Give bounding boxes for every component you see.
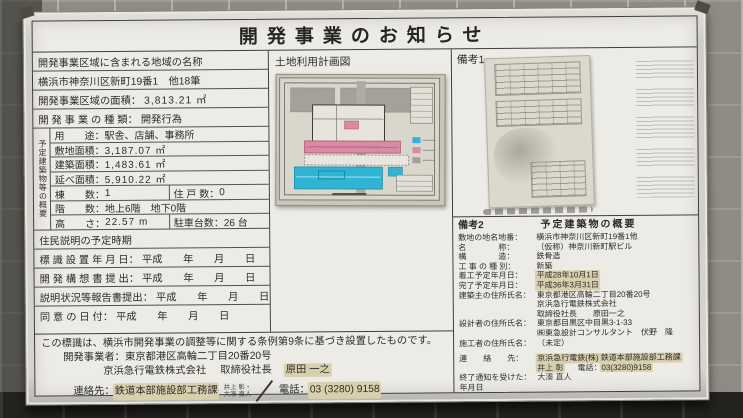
work-type-value: 新築 xyxy=(536,261,552,271)
owner-address: 東京都港区高輪二丁目20番20号 xyxy=(537,289,651,299)
land-use-plan-map xyxy=(275,74,445,206)
remarks2-phone-number: 03(3280)9158 xyxy=(601,363,651,373)
owner-company: 京浜急行電鉄株式会社 xyxy=(537,299,617,309)
height-cell: 高 さ： 22.57 m xyxy=(51,215,169,230)
height-label: 高 さ： xyxy=(55,215,105,230)
phone-number: 03 (3280) 9158 xyxy=(310,382,380,397)
planned-building-vertical-label: 予定建築物等の概要 xyxy=(33,128,51,229)
lot-number-label: 敷地の地名地番： xyxy=(458,233,536,243)
pasted-document-table-3 xyxy=(530,160,586,198)
parking-cell: 駐車台数： 26 台 xyxy=(169,214,269,228)
owner-label: 建築主の住所氏名： xyxy=(459,290,537,300)
sign-installed-date-label: 標 識 設 置 年 月 日： xyxy=(39,250,139,266)
total-floor-area-label: 延べ面積： xyxy=(55,171,105,186)
concept-submitted-date-label: 開 発 構 想 書 提 出： xyxy=(39,269,139,285)
report-submitted-date-row: 説明状況等報告書提出： 平成 年 月 日 xyxy=(35,286,270,307)
company-name: 京浜急行電鉄株式会社 xyxy=(103,365,206,377)
concept-submitted-date-value: 平成 年 月 日 xyxy=(142,268,255,284)
main-left-section: 開発事業区域に含まれる地域の名称 横浜市神奈川区新町19番1 他18筆 開発事業… xyxy=(33,49,455,395)
building-name-label: 名 称： xyxy=(458,242,536,252)
developer-address: 東京都港区高輪二丁目20番20号 xyxy=(125,350,272,362)
consent-date-label: 同 意 の 日 付： xyxy=(40,308,113,324)
project-type-value: 開発行為 xyxy=(141,110,182,125)
contact-department: 鉄道本部施設部工務課 xyxy=(115,384,218,399)
parking-value: 26 台 xyxy=(224,214,248,229)
faded-side-text xyxy=(636,57,695,197)
site-area-label: 敷地面積： xyxy=(54,142,104,157)
consent-date-value: 平成 年 月 日 xyxy=(116,307,229,323)
remarks2-title: 予定建築物の概要 xyxy=(484,220,694,231)
remarks2-contact-department: 京浜急行電鉄(株) 鉄道本部施設部工務課 xyxy=(537,353,681,364)
sign-installed-date-row: 標 識 設 置 年 月 日： 平成 年 月 日 xyxy=(34,248,269,269)
region-area-label: 開発事業区域の面積： xyxy=(38,91,141,107)
builder-label: 施工者の住所氏名： xyxy=(459,338,537,348)
use-label: 用 途： xyxy=(54,127,104,142)
total-floor-area-value: 5,910.22 ㎡ xyxy=(105,171,167,186)
pasted-document-table-1 xyxy=(494,61,581,96)
work-type-label: 工 事 の 種 別： xyxy=(458,261,536,271)
structure-value: 鉄骨造 xyxy=(536,252,560,262)
stories-value: 地上6階 地下0階 xyxy=(105,200,186,216)
handwritten-slash xyxy=(256,380,273,402)
planned-building-rows: 用 途： 駅舎、店舗、事務所 敷地面積： 3,187.07 ㎡ 建築面積： 1,… xyxy=(50,127,269,230)
building-area-label: 建築面積： xyxy=(55,157,105,172)
building-count-label: 棟 数： xyxy=(55,186,105,201)
consent-date-row: 同 意 の 日 付： 平成 年 月 日 xyxy=(35,305,270,326)
start-date-label: 着工予定年月日： xyxy=(459,271,537,281)
completion-notice-date-label: 年月日 xyxy=(459,383,483,392)
handwritten-names: 井上 彰・大湊 直人 xyxy=(224,383,252,397)
concept-submitted-date-row: 開 発 構 想 書 提 出： 平成 年 月 日 xyxy=(34,267,269,288)
builder-value: （未定） xyxy=(537,338,569,348)
land-use-plan-header: 土地利用計画図 xyxy=(269,49,451,69)
designer-company: ㈱東急設計コンサルタント 伏野 隆 xyxy=(537,328,673,339)
pasted-document xyxy=(484,55,595,208)
notice-content: 開発事業区域に含まれる地域の名称 横浜市神奈川区新町19番1 他18筆 開発事業… xyxy=(33,47,700,395)
remarks1-section: 備考1 xyxy=(452,47,698,217)
notice-board: 開発事業のお知らせ 開発事業区域に含まれる地域の名称 横浜市神奈川区新町19番1… xyxy=(32,15,701,396)
pasted-document-table-2 xyxy=(495,98,582,127)
sign-installed-date-value: 平成 年 月 日 xyxy=(142,249,255,265)
dwelling-units-label: 住 戸 数： xyxy=(174,185,220,200)
start-date-value: 平成28年10月1日 xyxy=(537,271,599,281)
project-type-label: 開 発 事 業 の 種 類： xyxy=(38,110,138,126)
region-area-row: 開発事業区域の面積： 3,813.21 ㎡ xyxy=(33,89,268,110)
land-use-plan-drawing xyxy=(276,75,442,203)
land-use-plan-section: 土地利用計画図 xyxy=(269,49,453,331)
planned-building-block: 予定建築物等の概要 用 途： 駅舎、店舗、事務所 敷地面積： 3,187.07 … xyxy=(33,127,269,231)
remarks2-contact-label: 連 絡 先： xyxy=(459,354,537,364)
ordinance-note: この標識は、横浜市開発事業の調整等に関する条例第9条に基づき設置したものです。 … xyxy=(35,330,453,395)
region-name-header: 開発事業区域に含まれる地域の名称 xyxy=(33,51,268,72)
remarks2-phone-label: 電話： xyxy=(577,363,601,373)
building-count-cell: 棟 数： 1 xyxy=(51,186,169,201)
resident-briefing-header: 住民説明の予定時期 xyxy=(34,229,269,250)
designer-label: 設計者の住所氏名： xyxy=(459,319,537,329)
completion-notice-label: 終了通知を受けた： xyxy=(459,373,537,383)
remarks-column: 備考1 備考2 予定建築物の概要 敷地の地名地番：横浜市神 xyxy=(452,47,700,391)
remarks2-section: 備考2 予定建築物の概要 敷地の地名地番：横浜市神奈川区新町19番1他 名 称：… xyxy=(453,215,699,391)
contact-row: 連絡先：鉄道本部施設部工務課井上 彰・大湊 直人電話：03 (3280) 915… xyxy=(41,376,447,405)
president-name: 原田 一之 xyxy=(286,364,330,375)
height-value: 22.57 m xyxy=(105,216,148,227)
project-type-row: 開 発 事 業 の 種 類： 開発行為 xyxy=(33,108,268,129)
completion-notice-person: 大湊 直人 xyxy=(537,373,571,383)
dwelling-units-cell: 住 戸 数： 0 xyxy=(169,185,269,199)
handwritten-name-2: 大湊 直人 xyxy=(224,390,252,397)
building-count-value: 1 xyxy=(105,188,111,199)
developer-label: 開発事業者： xyxy=(63,351,125,362)
notice-title: 開発事業のお知らせ xyxy=(33,16,697,52)
use-value: 駅舎、店舗、事務所 xyxy=(104,127,194,143)
site-area-value: 3,187.07 ㎡ xyxy=(104,141,166,156)
president-title: 取締役社長 xyxy=(220,364,272,375)
dwelling-units-value: 0 xyxy=(219,187,225,198)
completion-notice-date-row: 年月日 xyxy=(459,381,694,391)
designer-address: 東京都目黒区中目黒3-1-33 xyxy=(537,318,632,328)
development-notice-sign: 開発事業のお知らせ 開発事業区域に含まれる地域の名称 横浜市神奈川区新町19番1… xyxy=(22,6,709,405)
upper-section: 開発事業区域に含まれる地域の名称 横浜市神奈川区新町19番1 他18筆 開発事業… xyxy=(33,49,453,333)
stories-label: 階 数： xyxy=(55,200,105,215)
project-summary-table: 開発事業区域に含まれる地域の名称 横浜市神奈川区新町19番1 他18筆 開発事業… xyxy=(33,51,271,333)
building-name-value: （仮称）神奈川新町駅ビル xyxy=(536,242,632,252)
parking-label: 駐車台数： xyxy=(174,214,224,229)
remarks1-header: 備考1 xyxy=(457,54,485,66)
phone-label: 電話： xyxy=(279,383,310,397)
report-submitted-date-value: 平成 年 月 日 xyxy=(156,287,269,303)
remarks2-label: 備考2 xyxy=(458,221,484,231)
report-submitted-date-label: 説明状況等報告書提出： xyxy=(40,288,153,304)
end-date-label: 完了予定年月日： xyxy=(459,281,537,291)
structure-label: 構 造： xyxy=(458,252,536,262)
region-area-value: 3,813.21 ㎡ xyxy=(144,91,207,106)
end-date-value: 平成36年3月31日 xyxy=(537,280,599,290)
designer-company-row: ㈱東急設計コンサルタント 伏野 隆 xyxy=(459,327,694,338)
height-parking-row: 高 さ： 22.57 m 駐車台数： 26 台 xyxy=(51,214,269,229)
building-area-value: 1,483.61 ㎡ xyxy=(105,156,167,171)
remarks2-contact-person: 井上 彰 xyxy=(537,363,563,373)
region-name-value: 横浜市神奈川区新町19番1 他18筆 xyxy=(33,70,268,91)
contact-label: 連絡先： xyxy=(73,384,114,398)
